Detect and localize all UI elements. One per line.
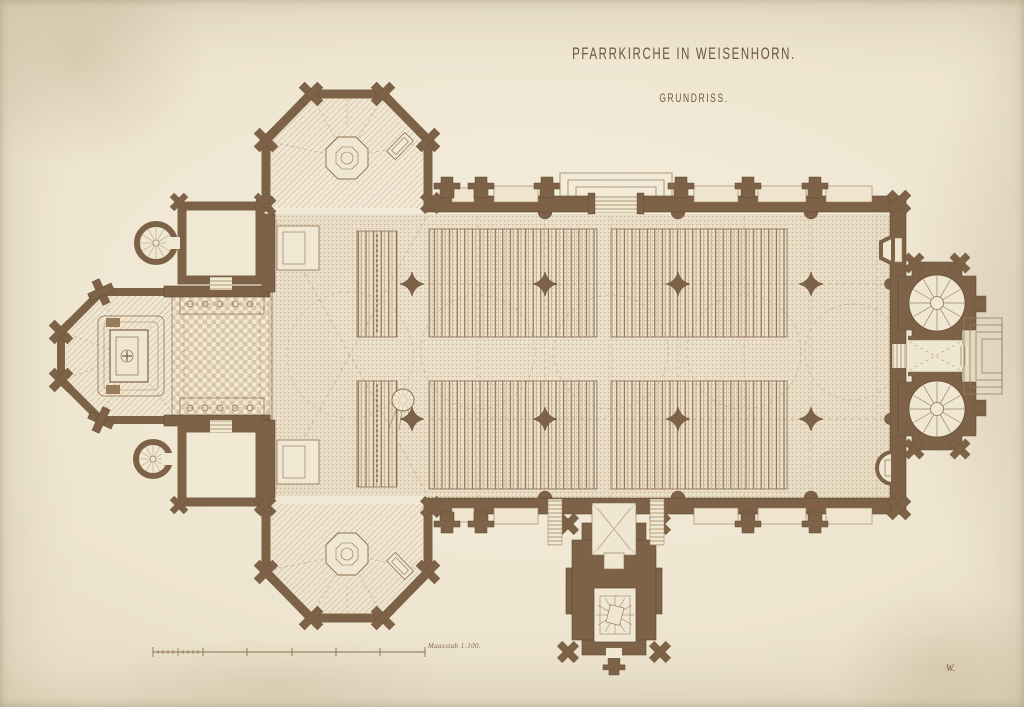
scale-bar [153, 647, 425, 657]
north-sacristy-wall [182, 206, 260, 280]
south-sacristy-wall [182, 428, 260, 502]
north-chapel-central-pier [326, 137, 368, 179]
scale-label: Maasstab 1:100. [428, 642, 481, 650]
pew-block [611, 381, 787, 489]
north-stair-turret [137, 224, 180, 262]
north-portal-steps [560, 173, 672, 196]
south-stair-turret [136, 442, 176, 476]
pew-block [429, 381, 597, 489]
church-floor-plan-drawing [0, 0, 1024, 707]
plate-mark: W. [946, 663, 955, 673]
pew-block [429, 229, 597, 337]
floor-surfaces [66, 99, 892, 613]
south-chapel-central-pier [326, 533, 368, 575]
east-entrance-steps [964, 318, 1002, 394]
plan-subtitle: GRUNDRISS. [634, 91, 754, 105]
scanned-plan-sheet: PFARRKIRCHE IN WEISENHORN. GRUNDRISS. Ma… [0, 0, 1024, 707]
plan-title: PFARRKIRCHE IN WEISENHORN. [572, 46, 796, 63]
pew-block [611, 229, 787, 337]
